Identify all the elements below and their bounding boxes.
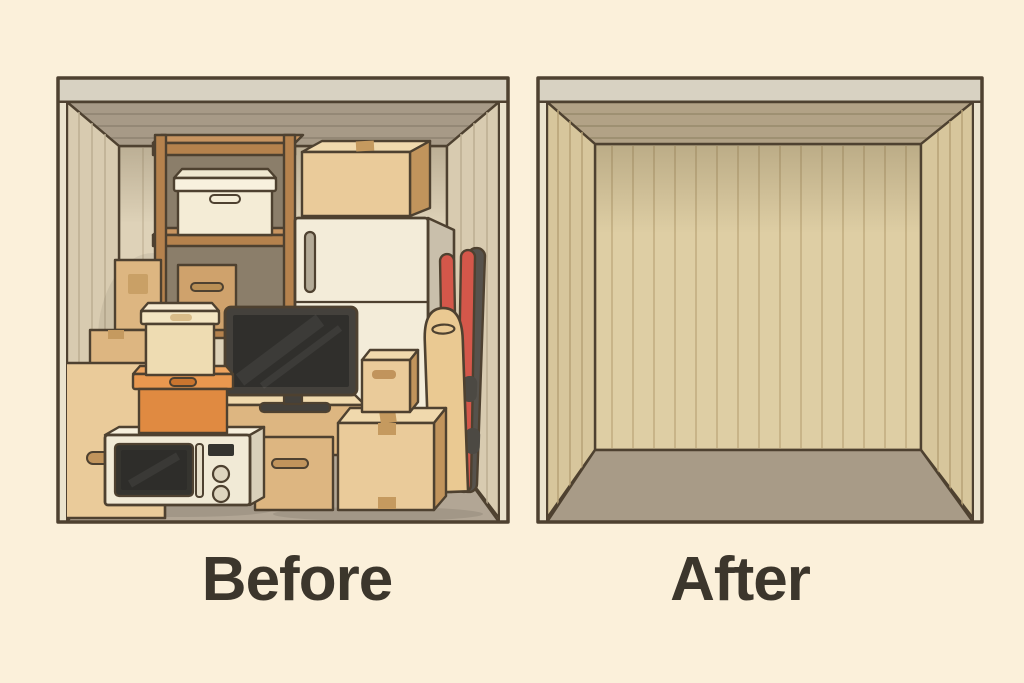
small-box-stacked bbox=[362, 350, 418, 412]
tape-tab bbox=[372, 370, 396, 379]
tape-tab bbox=[108, 330, 124, 339]
moving-box-on-refrigerator bbox=[302, 141, 430, 216]
floor-box-right bbox=[338, 408, 446, 510]
tape-tab bbox=[356, 141, 374, 152]
lintel bbox=[58, 78, 508, 102]
cream-box-body bbox=[146, 324, 214, 375]
lintel bbox=[538, 78, 982, 102]
unit-interior-after bbox=[547, 102, 973, 522]
shelf-board-middle bbox=[153, 235, 295, 246]
tape-tab-bottom bbox=[378, 497, 396, 509]
microwave-display bbox=[208, 444, 234, 456]
lid-tab bbox=[170, 314, 192, 321]
unit-interior-before bbox=[58, 102, 499, 522]
cream-lidded-box bbox=[141, 303, 219, 375]
box-label bbox=[128, 274, 148, 294]
orange-box-body bbox=[139, 389, 227, 433]
back-wall-shadow bbox=[595, 144, 921, 234]
microwave-knob-2 bbox=[213, 486, 229, 502]
flat-screen-tv bbox=[225, 307, 357, 412]
floor-box-center bbox=[255, 437, 333, 510]
microwave-handle bbox=[196, 444, 203, 497]
floor bbox=[547, 450, 973, 522]
microwave-knob-1 bbox=[213, 466, 229, 482]
left-wall bbox=[547, 102, 595, 518]
before-label: Before bbox=[202, 545, 392, 614]
storage-unit-after bbox=[538, 78, 982, 522]
white-storage-box bbox=[174, 169, 276, 235]
right-wall bbox=[921, 102, 973, 518]
illustration-canvas: Before After bbox=[0, 0, 1024, 683]
shelf-board-top bbox=[153, 143, 295, 155]
box-handle-slot bbox=[170, 378, 196, 386]
box-handle-slot bbox=[191, 283, 223, 291]
before-after-illustration: Before After bbox=[0, 0, 1024, 683]
storage-unit-before bbox=[58, 78, 508, 522]
tape-tab-front bbox=[378, 423, 396, 435]
microwave bbox=[105, 427, 264, 505]
after-label: After bbox=[670, 545, 811, 614]
box-handle-slot bbox=[272, 459, 308, 468]
fridge-handle bbox=[305, 232, 315, 292]
